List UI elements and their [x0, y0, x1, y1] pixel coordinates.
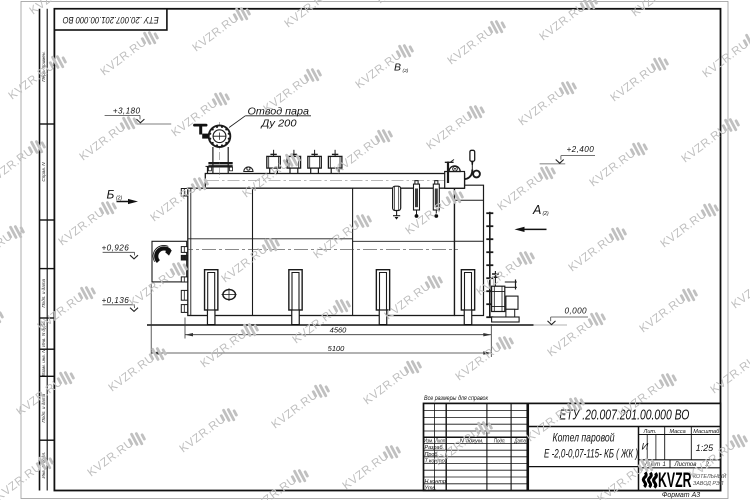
svg-text:KVZR.RU: KVZR.RU [6, 59, 57, 102]
svg-text:KVZR: KVZR [658, 469, 692, 492]
svg-text:Лит.: Лит. [643, 429, 657, 435]
svg-text:Лист: Лист [435, 438, 446, 444]
svg-text:KVZR.RU: KVZR.RU [637, 292, 688, 335]
svg-text:KVZR.RU: KVZR.RU [445, 24, 496, 67]
svg-text:KVZR.RU: KVZR.RU [729, 268, 750, 311]
svg-text:KVZR.RU: KVZR.RU [516, 85, 567, 128]
svg-text:KVZR.RU: KVZR.RU [361, 364, 412, 407]
svg-text:Дата: Дата [514, 438, 527, 444]
svg-text:4560: 4560 [330, 326, 348, 335]
svg-text:Формат А3: Формат А3 [662, 492, 700, 499]
svg-text:Справ. N: Справ. N [41, 162, 46, 182]
svg-text:+2,400: +2,400 [567, 145, 595, 154]
svg-text:KVZR.RU: KVZR.RU [282, 0, 333, 30]
svg-text:Взам. инв. N: Взам. инв. N [41, 349, 46, 376]
svg-text:1:25: 1:25 [696, 443, 715, 453]
svg-text:KVZR.RU: KVZR.RU [587, 146, 638, 189]
svg-text:5100: 5100 [328, 344, 346, 353]
svg-text:Е -2,0-0,07-115- КБ ( ЖК ): Е -2,0-0,07-115- КБ ( ЖК ) [544, 446, 638, 460]
svg-text:KVZR.RU: KVZR.RU [453, 340, 504, 383]
svg-text:+0,136: +0,136 [102, 296, 130, 305]
svg-text:+0,926: +0,926 [102, 243, 130, 252]
svg-text:KVZR.RU: KVZR.RU [190, 11, 241, 54]
svg-text:Подп. и дата: Подп. и дата [41, 278, 46, 307]
svg-text:KVZR.RU: KVZR.RU [424, 109, 475, 152]
svg-text:Все размеры для справок: Все размеры для справок [424, 394, 489, 402]
svg-text:KVZR.RU: KVZR.RU [608, 61, 659, 104]
svg-text:Масса: Масса [669, 429, 685, 435]
svg-text:KVZR.RU: KVZR.RU [658, 207, 709, 250]
svg-text:KVZR.RU: KVZR.RU [198, 327, 249, 370]
svg-text:KVZR.RU: KVZR.RU [85, 436, 136, 479]
svg-text:KVZR.RU: KVZR.RU [374, 0, 425, 6]
svg-text:ЕТУ .20.007.201.00.000 ВО: ЕТУ .20.007.201.00.000 ВО [62, 14, 158, 25]
svg-text:Н.контр.: Н.контр. [425, 479, 448, 485]
svg-text:KVZR.RU: KVZR.RU [269, 388, 320, 431]
svg-text:KVZR.RU: KVZR.RU [332, 133, 383, 176]
svg-text:0,000: 0,000 [565, 307, 588, 316]
svg-text:ЗАВОД РЭП: ЗАВОД РЭП [693, 481, 724, 487]
svg-text:1: 1 [663, 462, 666, 468]
svg-text:KVZR.RU: KVZR.RU [537, 0, 588, 43]
svg-text:Ду 200: Ду 200 [260, 118, 297, 129]
svg-text:KVZR.RU: KVZR.RU [679, 122, 730, 165]
svg-text:KVZR.RU: KVZR.RU [566, 231, 617, 274]
svg-text:KVZR.RU: KVZR.RU [98, 35, 149, 78]
svg-text:(2): (2) [543, 211, 549, 217]
svg-text:Б: Б [107, 188, 115, 202]
svg-text:KVZR.RU: KVZR.RU [77, 120, 128, 163]
svg-text:(2): (2) [403, 68, 409, 74]
svg-text:KVZR.RU: KVZR.RU [340, 449, 391, 492]
svg-text:KVZR.RU: KVZR.RU [545, 316, 596, 359]
svg-text:KVZR.RU: KVZR.RU [0, 229, 15, 272]
svg-text:А: А [532, 203, 541, 217]
svg-text:И: И [642, 442, 649, 453]
svg-text:Масштаб: Масштаб [693, 429, 720, 435]
svg-text:KVZR.RU: KVZR.RU [700, 37, 750, 80]
svg-text:KVZR.RU: KVZR.RU [177, 412, 228, 455]
svg-text:(2): (2) [116, 196, 122, 202]
svg-text:Котел паровой: Котел паровой [553, 431, 615, 445]
svg-text:Изм.: Изм. [424, 438, 434, 444]
svg-text:KVZR.RU: KVZR.RU [106, 351, 157, 394]
svg-text:+3,180: +3,180 [113, 106, 141, 115]
svg-text:KVZR.RU: KVZR.RU [708, 353, 750, 396]
svg-text:Утв.: Утв. [424, 485, 437, 491]
svg-text:Подп.: Подп. [494, 438, 506, 444]
svg-text:KVZR.RU: KVZR.RU [56, 205, 107, 248]
